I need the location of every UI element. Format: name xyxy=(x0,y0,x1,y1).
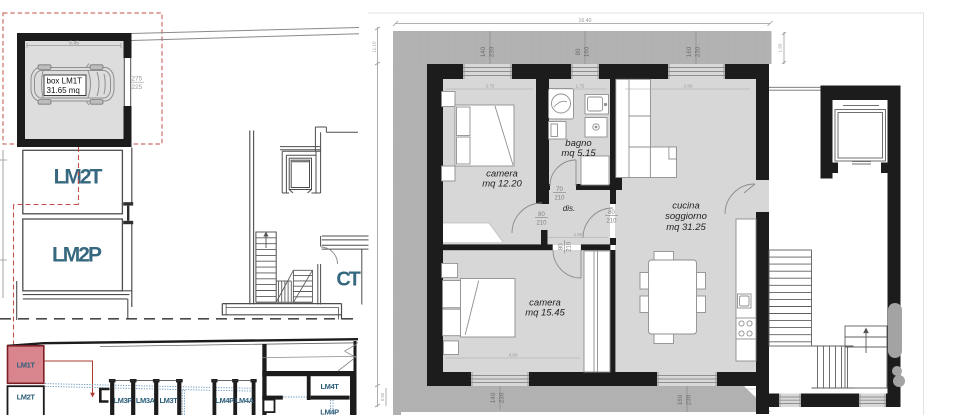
svg-text:11.10: 11.10 xyxy=(372,41,377,53)
svg-text:cucina: cucina xyxy=(672,201,699,212)
svg-text:LM2P: LM2P xyxy=(52,244,102,267)
svg-text:80: 80 xyxy=(538,212,545,218)
svg-text:2.80: 2.80 xyxy=(684,84,693,89)
svg-text:210: 210 xyxy=(554,196,565,202)
svg-text:soggiorno: soggiorno xyxy=(665,211,707,222)
svg-text:70: 70 xyxy=(556,187,563,193)
svg-text:mq 15.45: mq 15.45 xyxy=(525,308,565,319)
svg-text:16.40: 16.40 xyxy=(579,18,592,24)
svg-text:230: 230 xyxy=(498,392,505,403)
svg-text:275: 275 xyxy=(132,76,143,83)
svg-text:mq 12.20: mq 12.20 xyxy=(482,179,522,190)
svg-text:1.50: 1.50 xyxy=(574,232,583,237)
svg-text:140: 140 xyxy=(490,392,497,403)
svg-text:31.65 mq: 31.65 mq xyxy=(47,86,80,95)
svg-text:80: 80 xyxy=(559,243,565,250)
svg-text:mq 31.25: mq 31.25 xyxy=(666,222,706,233)
svg-text:230: 230 xyxy=(488,46,495,57)
svg-text:CT: CT xyxy=(336,269,360,291)
svg-text:LM2T: LM2T xyxy=(54,166,103,189)
svg-text:210: 210 xyxy=(567,241,573,252)
svg-text:1.75: 1.75 xyxy=(576,84,585,89)
svg-text:dis.: dis. xyxy=(563,204,575,213)
svg-text:1.50: 1.50 xyxy=(778,43,783,52)
svg-text:LM1T: LM1T xyxy=(17,360,36,369)
svg-text:mq 5.15: mq 5.15 xyxy=(561,148,596,159)
svg-text:80: 80 xyxy=(608,210,615,216)
svg-text:160: 160 xyxy=(677,394,684,405)
svg-text:160: 160 xyxy=(583,46,590,57)
svg-text:4.60: 4.60 xyxy=(509,352,518,357)
svg-text:225: 225 xyxy=(132,84,143,91)
svg-text:80: 80 xyxy=(575,48,582,55)
svg-text:LM4P: LM4P xyxy=(215,396,234,405)
svg-text:140: 140 xyxy=(480,46,487,57)
svg-text:LM3A: LM3A xyxy=(136,396,156,405)
svg-text:210: 210 xyxy=(606,219,617,225)
svg-text:210: 210 xyxy=(536,221,547,227)
svg-text:box LM1T: box LM1T xyxy=(47,77,83,86)
svg-text:LM4A: LM4A xyxy=(235,396,255,405)
svg-text:230: 230 xyxy=(685,394,692,405)
svg-text:0.90: 0.90 xyxy=(380,392,385,401)
svg-text:LM4T: LM4T xyxy=(321,382,340,391)
svg-text:160: 160 xyxy=(686,46,693,57)
svg-text:LM4P: LM4P xyxy=(320,408,339,415)
svg-text:230: 230 xyxy=(694,46,701,57)
svg-text:2.75: 2.75 xyxy=(486,84,495,89)
svg-text:5.45: 5.45 xyxy=(69,40,79,46)
svg-text:LM3P: LM3P xyxy=(113,396,132,405)
svg-text:LM3T: LM3T xyxy=(160,396,179,405)
svg-text:LM2T: LM2T xyxy=(17,393,36,402)
